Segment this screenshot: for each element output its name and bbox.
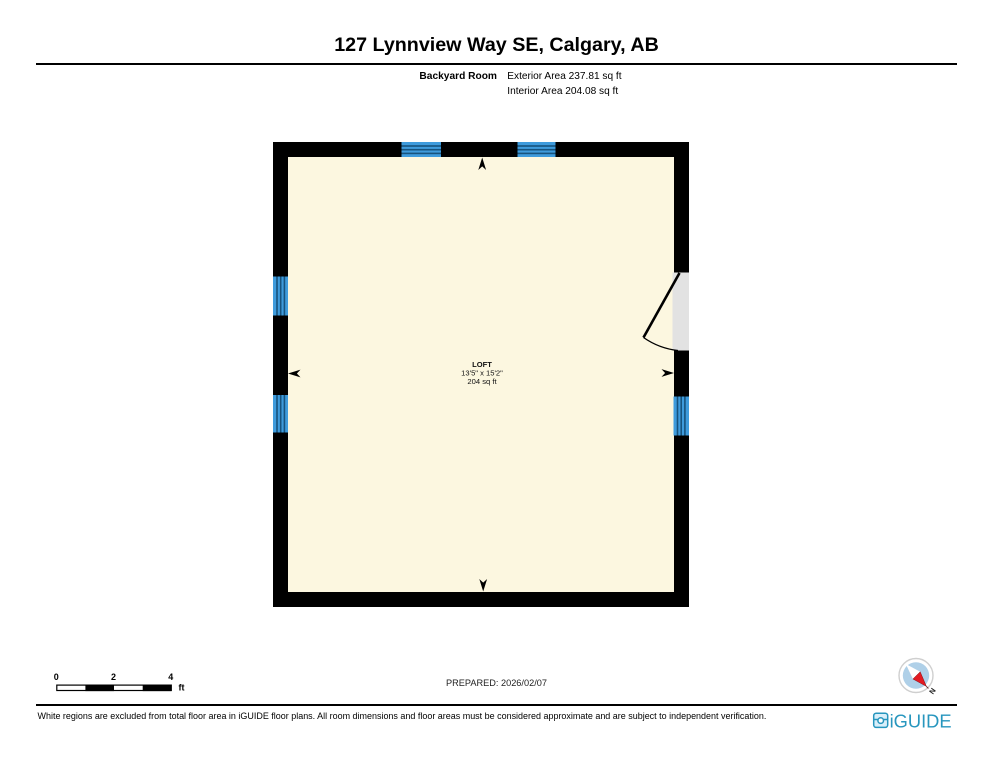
svg-text:iGUIDE: iGUIDE	[890, 711, 952, 732]
svg-text:204 sq ft: 204 sq ft	[467, 376, 497, 385]
